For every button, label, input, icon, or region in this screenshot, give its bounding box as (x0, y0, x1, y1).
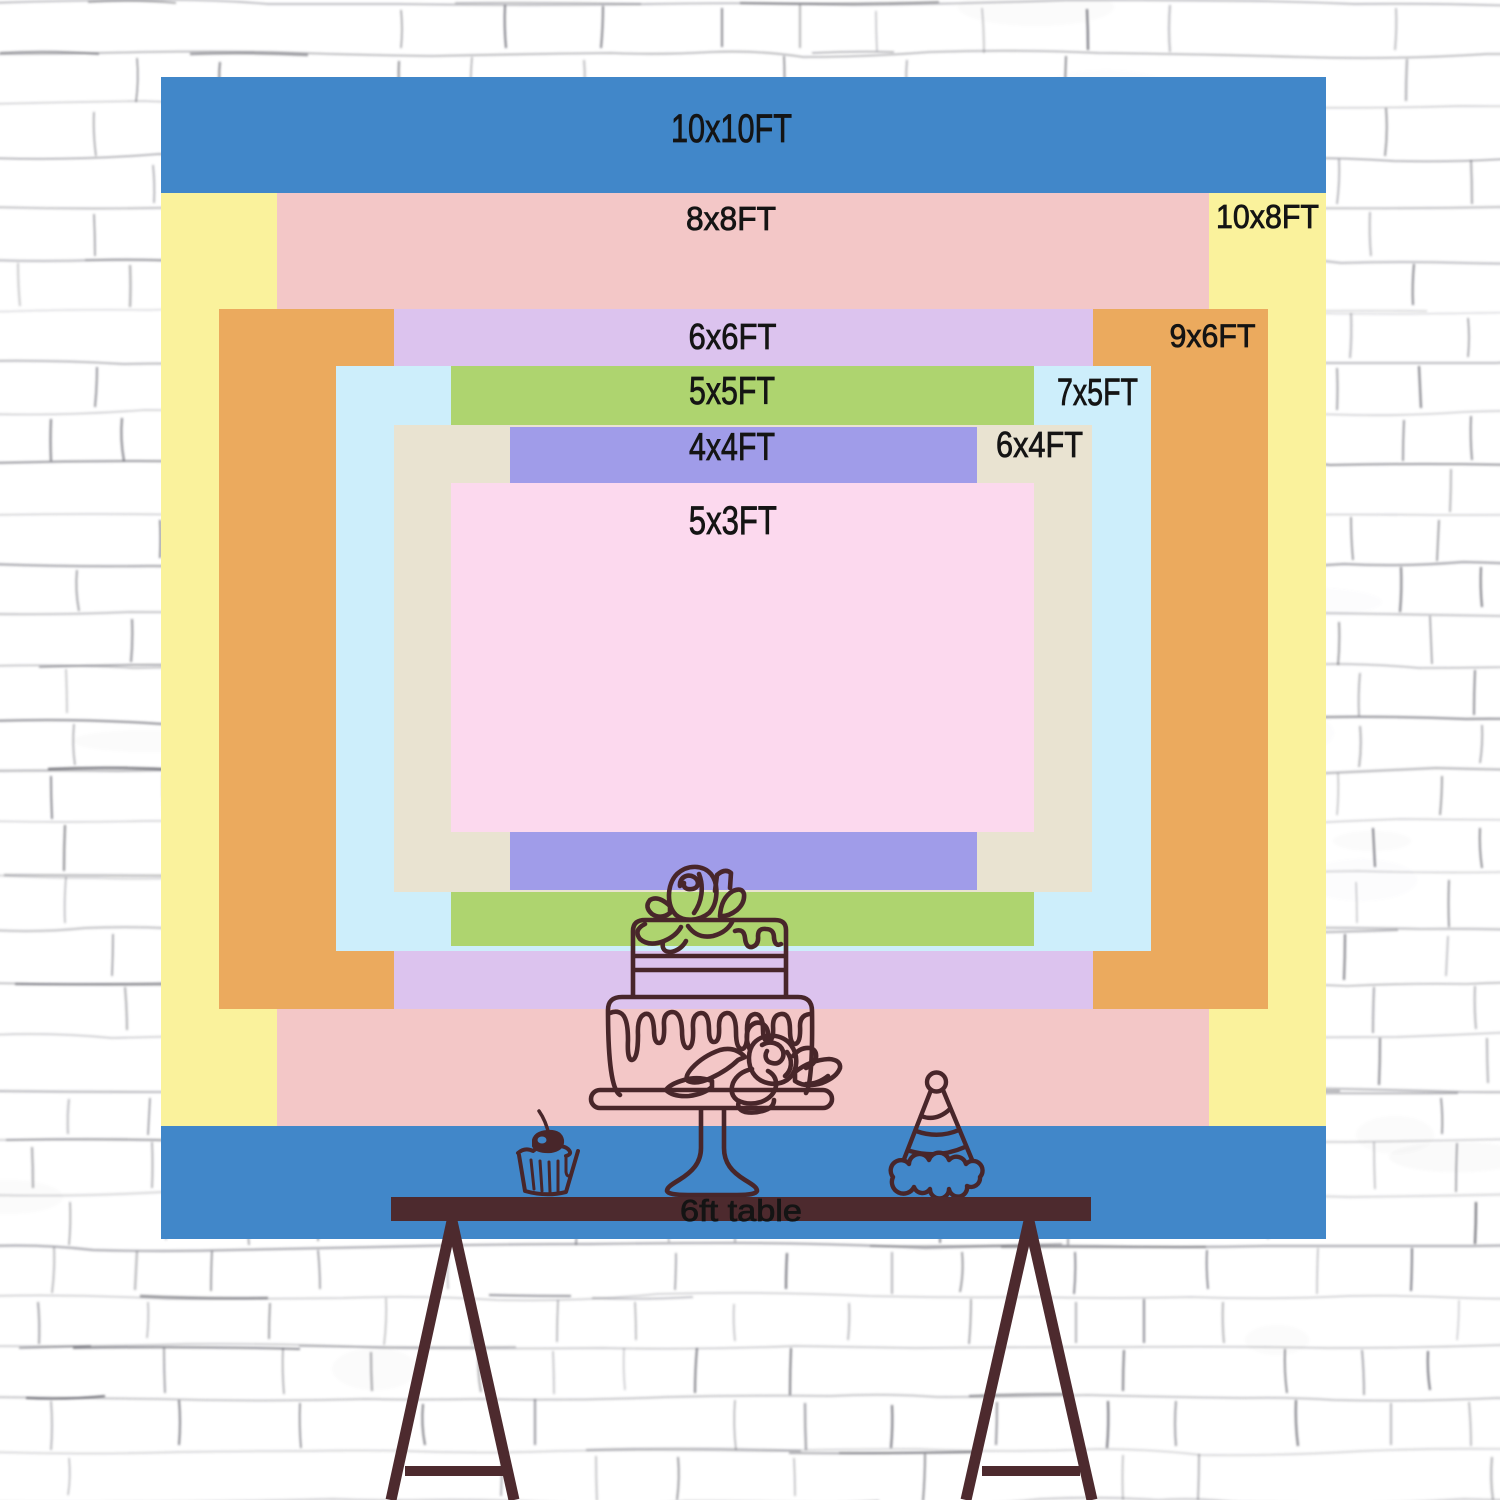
svg-text:10x8FT: 10x8FT (1216, 199, 1319, 236)
svg-text:7x5FT: 7x5FT (1057, 372, 1138, 414)
svg-text:6x6FT: 6x6FT (689, 316, 777, 357)
svg-text:9x6FT: 9x6FT (1170, 318, 1256, 354)
svg-text:6ft table: 6ft table (680, 1193, 802, 1228)
svg-text:5x5FT: 5x5FT (689, 370, 775, 413)
svg-text:4x4FT: 4x4FT (689, 426, 775, 469)
svg-text:6x4FT: 6x4FT (996, 424, 1083, 465)
svg-text:8x8FT: 8x8FT (686, 201, 776, 238)
svg-text:5x3FT: 5x3FT (689, 499, 777, 543)
svg-text:10x10FT: 10x10FT (671, 107, 792, 151)
